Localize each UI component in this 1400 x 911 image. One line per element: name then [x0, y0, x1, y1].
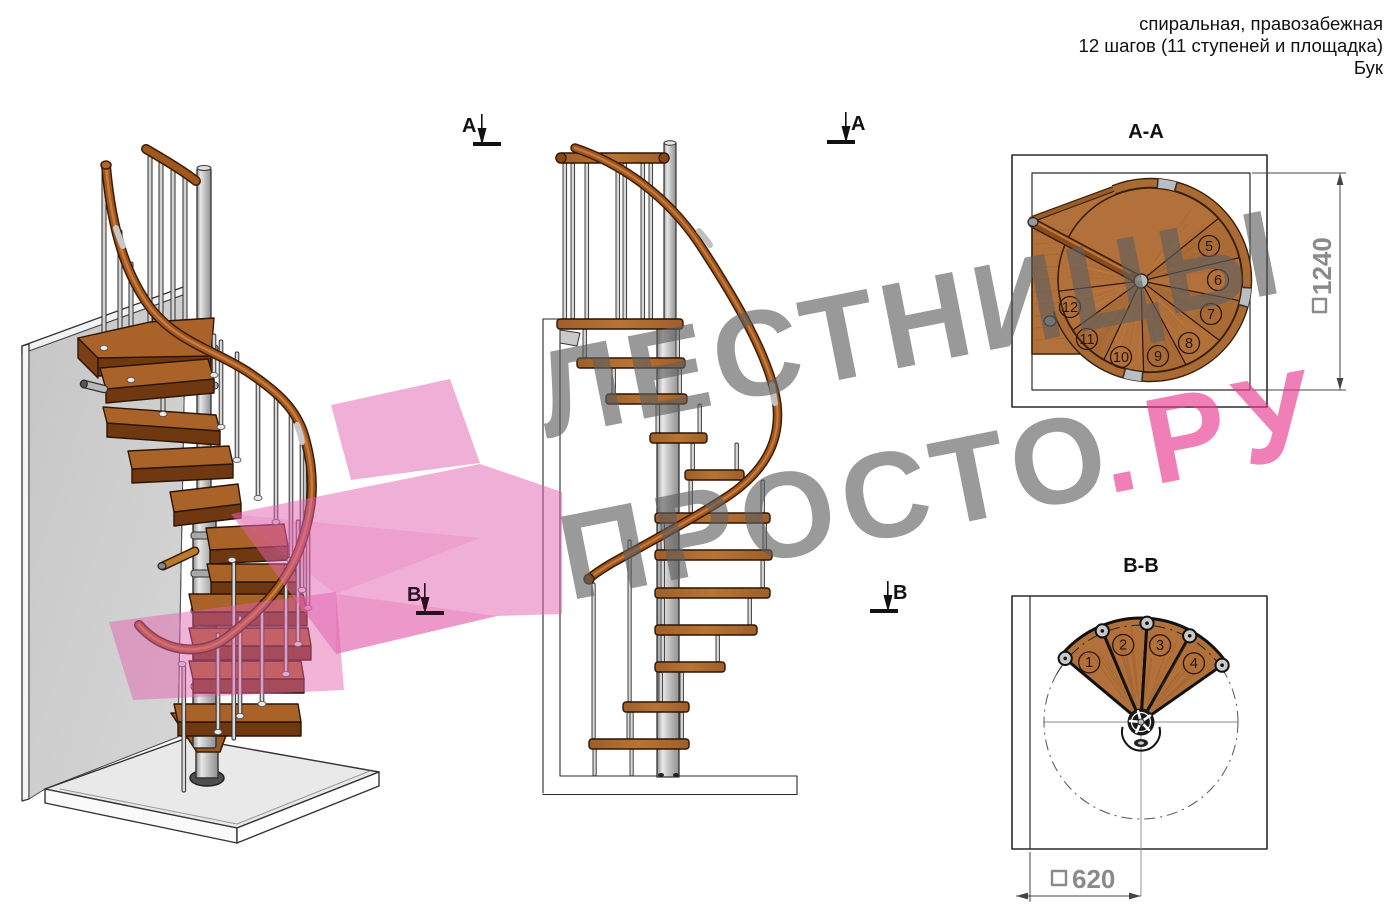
- svg-text:10: 10: [1113, 350, 1129, 366]
- svg-text:А: А: [462, 115, 476, 137]
- svg-text:1240: 1240: [1307, 237, 1337, 295]
- svg-text:Бук: Бук: [1354, 57, 1384, 78]
- svg-text:4: 4: [1190, 656, 1198, 672]
- svg-text:3: 3: [1156, 638, 1164, 654]
- svg-text:620: 620: [1072, 864, 1115, 894]
- svg-text:8: 8: [1185, 336, 1193, 352]
- svg-text:2: 2: [1119, 638, 1127, 654]
- svg-text:А: А: [851, 113, 865, 135]
- svg-text:В: В: [893, 582, 907, 604]
- svg-text:спиральная, правозабежная: спиральная, правозабежная: [1139, 13, 1383, 34]
- svg-text:1: 1: [1085, 655, 1093, 671]
- svg-text:В: В: [407, 584, 421, 606]
- svg-text:А-А: А-А: [1128, 121, 1164, 143]
- svg-text:12 шагов (11 ступеней и площад: 12 шагов (11 ступеней и площадка): [1079, 35, 1383, 56]
- svg-text:В-В: В-В: [1123, 555, 1159, 577]
- svg-text:9: 9: [1154, 349, 1162, 365]
